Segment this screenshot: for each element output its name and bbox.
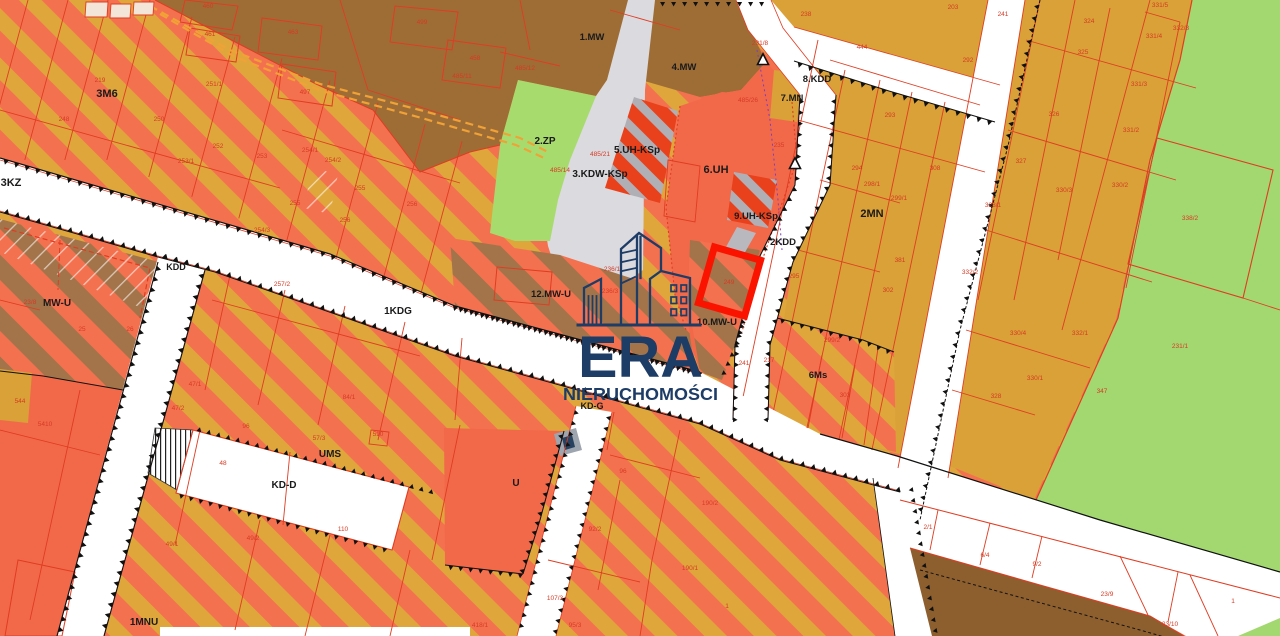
svg-text:325: 325 — [1078, 49, 1089, 56]
svg-text:299/1: 299/1 — [891, 195, 908, 202]
svg-text:U: U — [512, 478, 519, 489]
svg-text:110: 110 — [338, 526, 349, 533]
svg-text:302: 302 — [883, 287, 894, 294]
svg-text:331/2: 331/2 — [1123, 127, 1140, 134]
svg-text:47/2: 47/2 — [172, 405, 185, 412]
svg-text:203: 203 — [948, 4, 959, 11]
svg-text:25: 25 — [78, 326, 86, 333]
svg-text:5410: 5410 — [38, 421, 53, 428]
svg-text:23/10: 23/10 — [1162, 621, 1179, 628]
svg-text:485/21: 485/21 — [590, 151, 610, 158]
svg-text:255: 255 — [355, 185, 366, 192]
svg-text:23/9: 23/9 — [1101, 591, 1114, 598]
svg-text:238: 238 — [801, 11, 812, 18]
svg-text:1KDG: 1KDG — [384, 306, 412, 317]
svg-text:330/1: 330/1 — [1027, 375, 1044, 382]
svg-text:6.UH: 6.UH — [703, 164, 728, 176]
svg-text:418/1: 418/1 — [472, 622, 489, 629]
svg-text:330/2: 330/2 — [1112, 182, 1129, 189]
svg-text:8.KDD: 8.KDD — [803, 74, 832, 85]
svg-text:461: 461 — [205, 31, 216, 38]
svg-text:332/2: 332/2 — [962, 269, 979, 276]
svg-text:26: 26 — [126, 326, 134, 333]
svg-text:299/2: 299/2 — [824, 337, 841, 344]
svg-text:2.ZP: 2.ZP — [534, 136, 555, 147]
svg-text:NIERUCHOMOŚCI: NIERUCHOMOŚCI — [563, 383, 718, 404]
svg-text:292: 292 — [963, 57, 974, 64]
svg-text:331/3: 331/3 — [1131, 81, 1148, 88]
svg-text:107/3: 107/3 — [547, 595, 564, 602]
svg-text:92/2: 92/2 — [589, 526, 602, 533]
svg-text:463: 463 — [288, 29, 299, 36]
svg-text:23/8: 23/8 — [24, 299, 37, 306]
svg-text:256: 256 — [407, 201, 418, 208]
svg-text:328/1: 328/1 — [985, 202, 1002, 209]
svg-text:MW-U: MW-U — [43, 298, 71, 309]
svg-text:190/1: 190/1 — [682, 565, 699, 572]
svg-text:10.MW-U: 10.MW-U — [697, 317, 737, 328]
svg-text:327: 327 — [1016, 158, 1027, 165]
svg-text:252: 252 — [213, 143, 224, 150]
svg-text:251/1: 251/1 — [206, 81, 223, 88]
svg-text:485/11: 485/11 — [452, 73, 472, 80]
svg-text:5.UH-KSp: 5.UH-KSp — [614, 145, 660, 156]
svg-text:4.MW: 4.MW — [672, 62, 697, 73]
svg-text:332/1: 332/1 — [1072, 330, 1089, 337]
svg-text:96: 96 — [619, 468, 627, 475]
svg-text:96: 96 — [242, 423, 250, 430]
svg-text:47/1: 47/1 — [189, 381, 202, 388]
svg-text:444: 444 — [857, 44, 868, 51]
svg-text:248: 248 — [59, 116, 70, 123]
svg-text:49/2: 49/2 — [247, 535, 260, 542]
svg-text:49/1: 49/1 — [166, 541, 179, 548]
svg-text:257/2: 257/2 — [274, 281, 291, 288]
svg-text:295: 295 — [789, 273, 800, 280]
svg-text:499: 499 — [417, 19, 428, 26]
svg-text:460: 460 — [203, 3, 214, 10]
svg-text:485/26: 485/26 — [738, 97, 758, 104]
svg-text:458: 458 — [470, 55, 481, 62]
svg-text:1.MW: 1.MW — [580, 32, 605, 43]
svg-text:381: 381 — [895, 257, 906, 264]
svg-text:6Ms: 6Ms — [809, 370, 827, 381]
svg-text:KDD: KDD — [166, 262, 186, 272]
svg-text:330/4: 330/4 — [1010, 330, 1027, 337]
svg-text:338/2: 338/2 — [1182, 215, 1199, 222]
svg-text:KD-D: KD-D — [272, 480, 297, 491]
svg-text:3.KDW-KSp: 3.KDW-KSp — [572, 169, 627, 180]
svg-text:235: 235 — [774, 142, 785, 149]
svg-text:303: 303 — [840, 392, 851, 399]
svg-text:1: 1 — [725, 603, 729, 610]
svg-text:293: 293 — [885, 112, 896, 119]
svg-text:57/3: 57/3 — [313, 435, 326, 442]
svg-text:219: 219 — [95, 77, 106, 84]
svg-text:331/5: 331/5 — [1152, 2, 1169, 9]
svg-text:255: 255 — [290, 200, 301, 207]
svg-text:7.MN: 7.MN — [781, 93, 804, 104]
svg-text:324: 324 — [1084, 18, 1095, 25]
svg-text:254/1: 254/1 — [302, 147, 319, 154]
svg-text:2MN: 2MN — [860, 208, 883, 220]
svg-text:485/12: 485/12 — [515, 65, 535, 72]
svg-text:253: 253 — [257, 153, 268, 160]
svg-text:1MNU: 1MNU — [130, 617, 158, 628]
svg-text:241: 241 — [739, 360, 750, 367]
svg-text:190/2: 190/2 — [702, 500, 719, 507]
svg-text:3KZ: 3KZ — [1, 177, 22, 189]
svg-text:331/4: 331/4 — [1146, 33, 1163, 40]
svg-text:84/1: 84/1 — [343, 394, 356, 401]
svg-text:241: 241 — [998, 11, 1009, 18]
svg-text:254/2: 254/2 — [325, 157, 342, 164]
svg-text:510: 510 — [373, 431, 384, 438]
svg-text:95/3: 95/3 — [569, 622, 582, 629]
svg-text:12.MW-U: 12.MW-U — [531, 289, 571, 300]
svg-text:249: 249 — [724, 279, 735, 286]
svg-text:1: 1 — [1231, 598, 1235, 605]
svg-text:330/3: 330/3 — [1056, 187, 1073, 194]
svg-text:347: 347 — [1097, 388, 1108, 395]
svg-text:236/1: 236/1 — [604, 266, 621, 273]
svg-text:231/1: 231/1 — [1172, 343, 1189, 350]
svg-text:544: 544 — [15, 398, 26, 405]
svg-text:231/8: 231/8 — [752, 40, 769, 47]
svg-text:326: 326 — [1049, 111, 1060, 118]
svg-text:308: 308 — [930, 165, 941, 172]
svg-text:ERA: ERA — [578, 325, 703, 390]
svg-text:254/3: 254/3 — [254, 227, 271, 234]
svg-text:9.UH-KSp: 9.UH-KSp — [734, 211, 778, 222]
svg-text:2KDD: 2KDD — [770, 237, 796, 248]
svg-text:3M6: 3M6 — [96, 88, 117, 100]
svg-text:294: 294 — [852, 165, 863, 172]
svg-text:328: 328 — [991, 393, 1002, 400]
svg-text:253/1: 253/1 — [178, 158, 195, 165]
svg-text:9/2: 9/2 — [1032, 561, 1041, 568]
svg-text:250: 250 — [154, 116, 165, 123]
svg-text:497: 497 — [300, 89, 311, 96]
svg-text:UMS: UMS — [319, 449, 342, 460]
svg-text:332/3: 332/3 — [1173, 25, 1190, 32]
svg-text:236/3: 236/3 — [602, 288, 619, 295]
svg-text:298/1: 298/1 — [864, 181, 881, 188]
svg-text:2/1: 2/1 — [923, 524, 932, 531]
svg-text:485/14: 485/14 — [550, 167, 570, 174]
svg-text:256: 256 — [340, 217, 351, 224]
svg-text:48: 48 — [219, 460, 227, 467]
svg-text:6/4: 6/4 — [980, 552, 989, 559]
svg-text:217: 217 — [764, 357, 775, 364]
